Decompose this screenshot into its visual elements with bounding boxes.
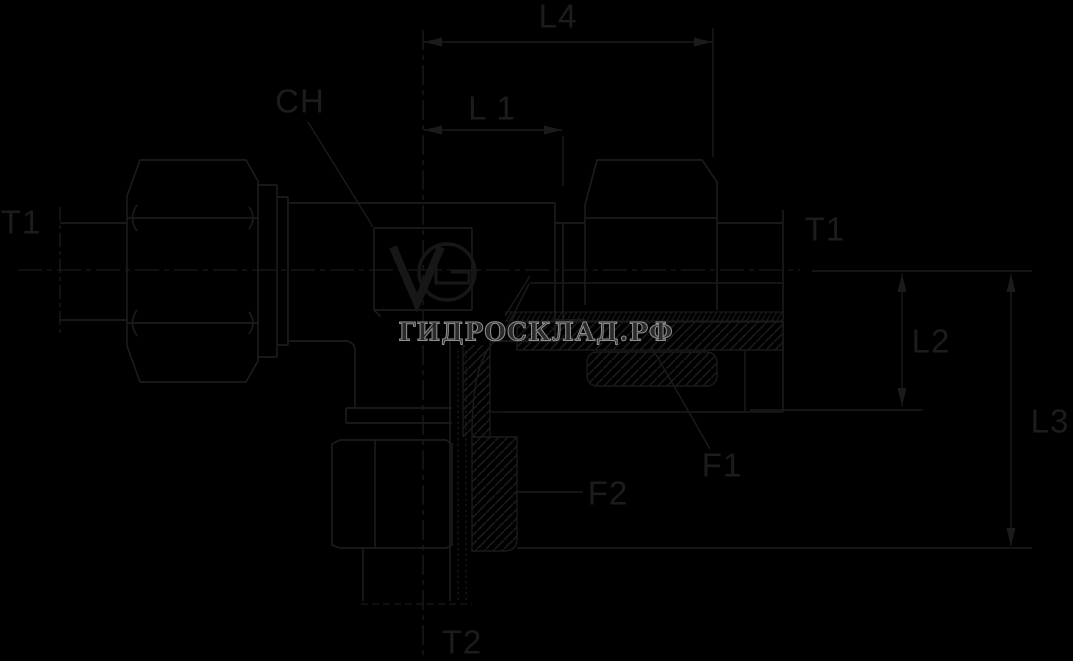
drawing-canvas: ГИДРОСКЛАД.РФ L4 L 1 CH T1 T1 L2 L3 F1 F… (0, 0, 1073, 659)
dim-label-l4: L4 (539, 0, 578, 33)
branch-left-wall (347, 341, 355, 408)
dim-label-f1: F1 (702, 449, 743, 482)
dim-label-t1-left: T1 (1, 206, 42, 239)
right-hex-nut (585, 160, 717, 310)
dimension-lines (308, 28, 1032, 548)
branch-wall-section (463, 345, 490, 437)
dim-label-l1: L 1 (468, 92, 516, 125)
left-hex-nut (127, 160, 258, 382)
dim-label-f2: F2 (588, 477, 629, 510)
left-port (60, 160, 288, 382)
left-thread-lines (60, 223, 127, 320)
left-washer (258, 185, 288, 357)
section-break-line (505, 276, 530, 316)
dim-label-t1-right: T1 (805, 213, 846, 246)
dim-label-ch: CH (275, 85, 325, 118)
f1-seal-section (587, 352, 717, 386)
branch-hex-nut (332, 440, 452, 548)
brand-logo-icon (393, 244, 475, 303)
dim-label-t2: T2 (442, 626, 483, 659)
f2-seal-section (472, 437, 517, 551)
branch-flange (346, 408, 452, 423)
watermark-text: ГИДРОСКЛАД.РФ (398, 318, 673, 347)
dim-label-l3: L3 (1031, 405, 1070, 438)
dim-label-l2: L2 (912, 325, 951, 358)
leader-ch (308, 122, 373, 227)
